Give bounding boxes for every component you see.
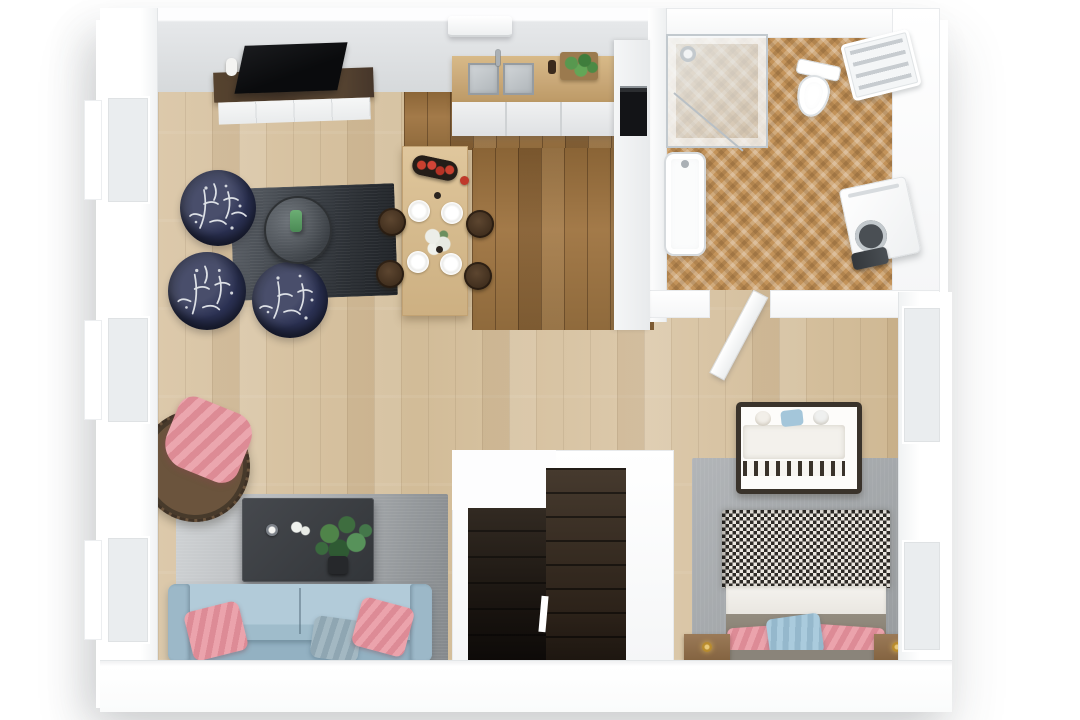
cot-toy-left bbox=[755, 411, 771, 426]
sofa-seat-seam bbox=[299, 588, 301, 634]
stairwell-landing bbox=[452, 450, 556, 510]
plate-2 bbox=[441, 202, 463, 224]
cot-toy-right bbox=[813, 410, 829, 425]
tall-cabinet bbox=[614, 40, 650, 330]
cot-pillow-blue bbox=[780, 409, 804, 427]
kitchen-sink-left bbox=[468, 63, 499, 95]
bed-houndstooth-throw bbox=[722, 510, 890, 588]
kitchen-tap bbox=[496, 50, 500, 66]
bathroom-bottom-wall-left bbox=[648, 290, 710, 318]
right-window-1 bbox=[902, 306, 942, 444]
tv bbox=[234, 42, 347, 94]
bathtub bbox=[664, 152, 706, 256]
pouf-botanical-2 bbox=[168, 252, 246, 330]
left-window-sill-2 bbox=[84, 320, 102, 420]
left-window-sill-1 bbox=[84, 100, 102, 200]
pouf-botanical-1 bbox=[180, 170, 256, 246]
stair-winders bbox=[510, 576, 626, 662]
botanical-pattern bbox=[168, 252, 246, 330]
radiator-bars bbox=[850, 38, 913, 92]
washer-panel bbox=[848, 183, 900, 198]
right-window-2 bbox=[902, 540, 942, 652]
baby-cot bbox=[736, 402, 862, 494]
left-window-sill-3 bbox=[84, 540, 102, 640]
sofa-armrest-right bbox=[410, 584, 432, 662]
botanical-pattern bbox=[252, 262, 328, 338]
botanical-pattern bbox=[180, 170, 256, 246]
dining-stool-3 bbox=[466, 210, 494, 238]
oil-bottle bbox=[548, 60, 556, 74]
plate-1 bbox=[408, 200, 430, 222]
bottom-wall bbox=[100, 660, 952, 712]
dining-stool-4 bbox=[464, 262, 492, 290]
bed-white-sheet-band bbox=[726, 586, 886, 616]
built-in-oven bbox=[620, 86, 647, 136]
herb-planter bbox=[560, 52, 598, 80]
condiment-dark-2 bbox=[436, 246, 443, 253]
cot-blanket bbox=[743, 425, 845, 459]
candle-holder bbox=[266, 524, 278, 536]
plate-4 bbox=[440, 253, 462, 275]
left-window-3 bbox=[106, 536, 150, 644]
left-window-1 bbox=[106, 96, 150, 204]
dining-stool-2 bbox=[376, 260, 404, 288]
bath-tap bbox=[681, 160, 689, 168]
kitchen-sink-right bbox=[503, 63, 534, 95]
apple-loose bbox=[460, 176, 469, 185]
condiment-dark-1 bbox=[434, 192, 441, 199]
shower-head bbox=[680, 46, 696, 62]
left-window-2 bbox=[106, 316, 150, 424]
cot-slats bbox=[743, 461, 845, 476]
decor-vase-white bbox=[226, 58, 237, 76]
ac-unit bbox=[448, 16, 512, 37]
pouf-botanical-3 bbox=[252, 262, 328, 338]
shower bbox=[666, 34, 768, 148]
shower-glass-bar bbox=[673, 92, 743, 151]
dining-stool-1 bbox=[378, 208, 406, 236]
floor-plan-render bbox=[0, 0, 1080, 720]
white-flowers-small bbox=[290, 520, 312, 538]
green-vase bbox=[290, 210, 302, 232]
plant-pot bbox=[328, 556, 348, 574]
kitchen-base-cabinets bbox=[452, 102, 616, 136]
lamp-brass-left bbox=[702, 642, 712, 652]
